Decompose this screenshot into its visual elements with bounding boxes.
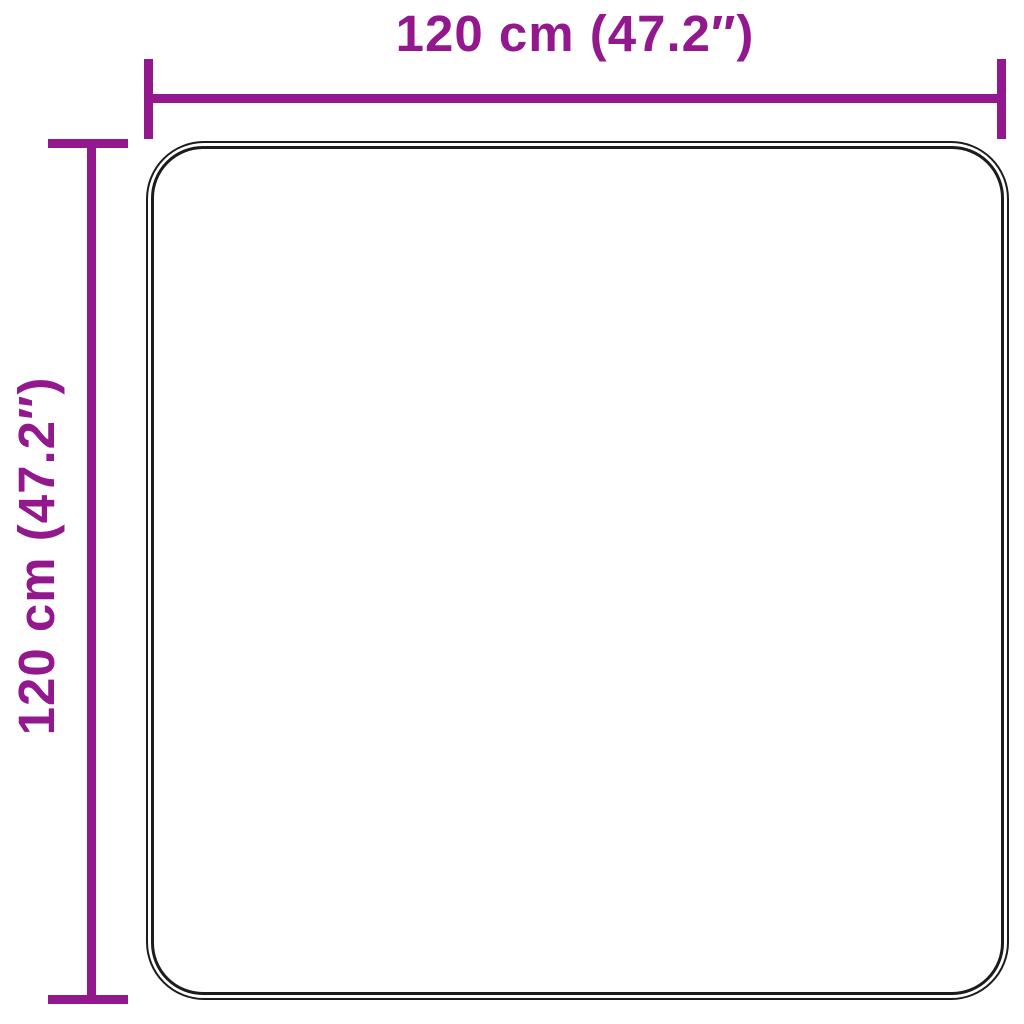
rug-outline-outer	[146, 141, 1009, 1000]
width-dimension-right-tick	[997, 59, 1006, 139]
width-dimension-left-tick	[144, 59, 153, 139]
dimension-diagram: 120 cm (47.2″) 120 cm (47.2″)	[0, 0, 1024, 1024]
width-dimension-line	[144, 94, 1006, 103]
height-dimension-top-tick	[48, 139, 128, 148]
rug-outline-inner	[151, 146, 1004, 995]
height-dimension-line	[87, 140, 96, 1004]
width-dimension-label: 120 cm (47.2″)	[144, 4, 1006, 64]
height-dimension-bottom-tick	[48, 995, 128, 1004]
height-dimension-label: 120 cm (47.2″)	[7, 256, 67, 856]
